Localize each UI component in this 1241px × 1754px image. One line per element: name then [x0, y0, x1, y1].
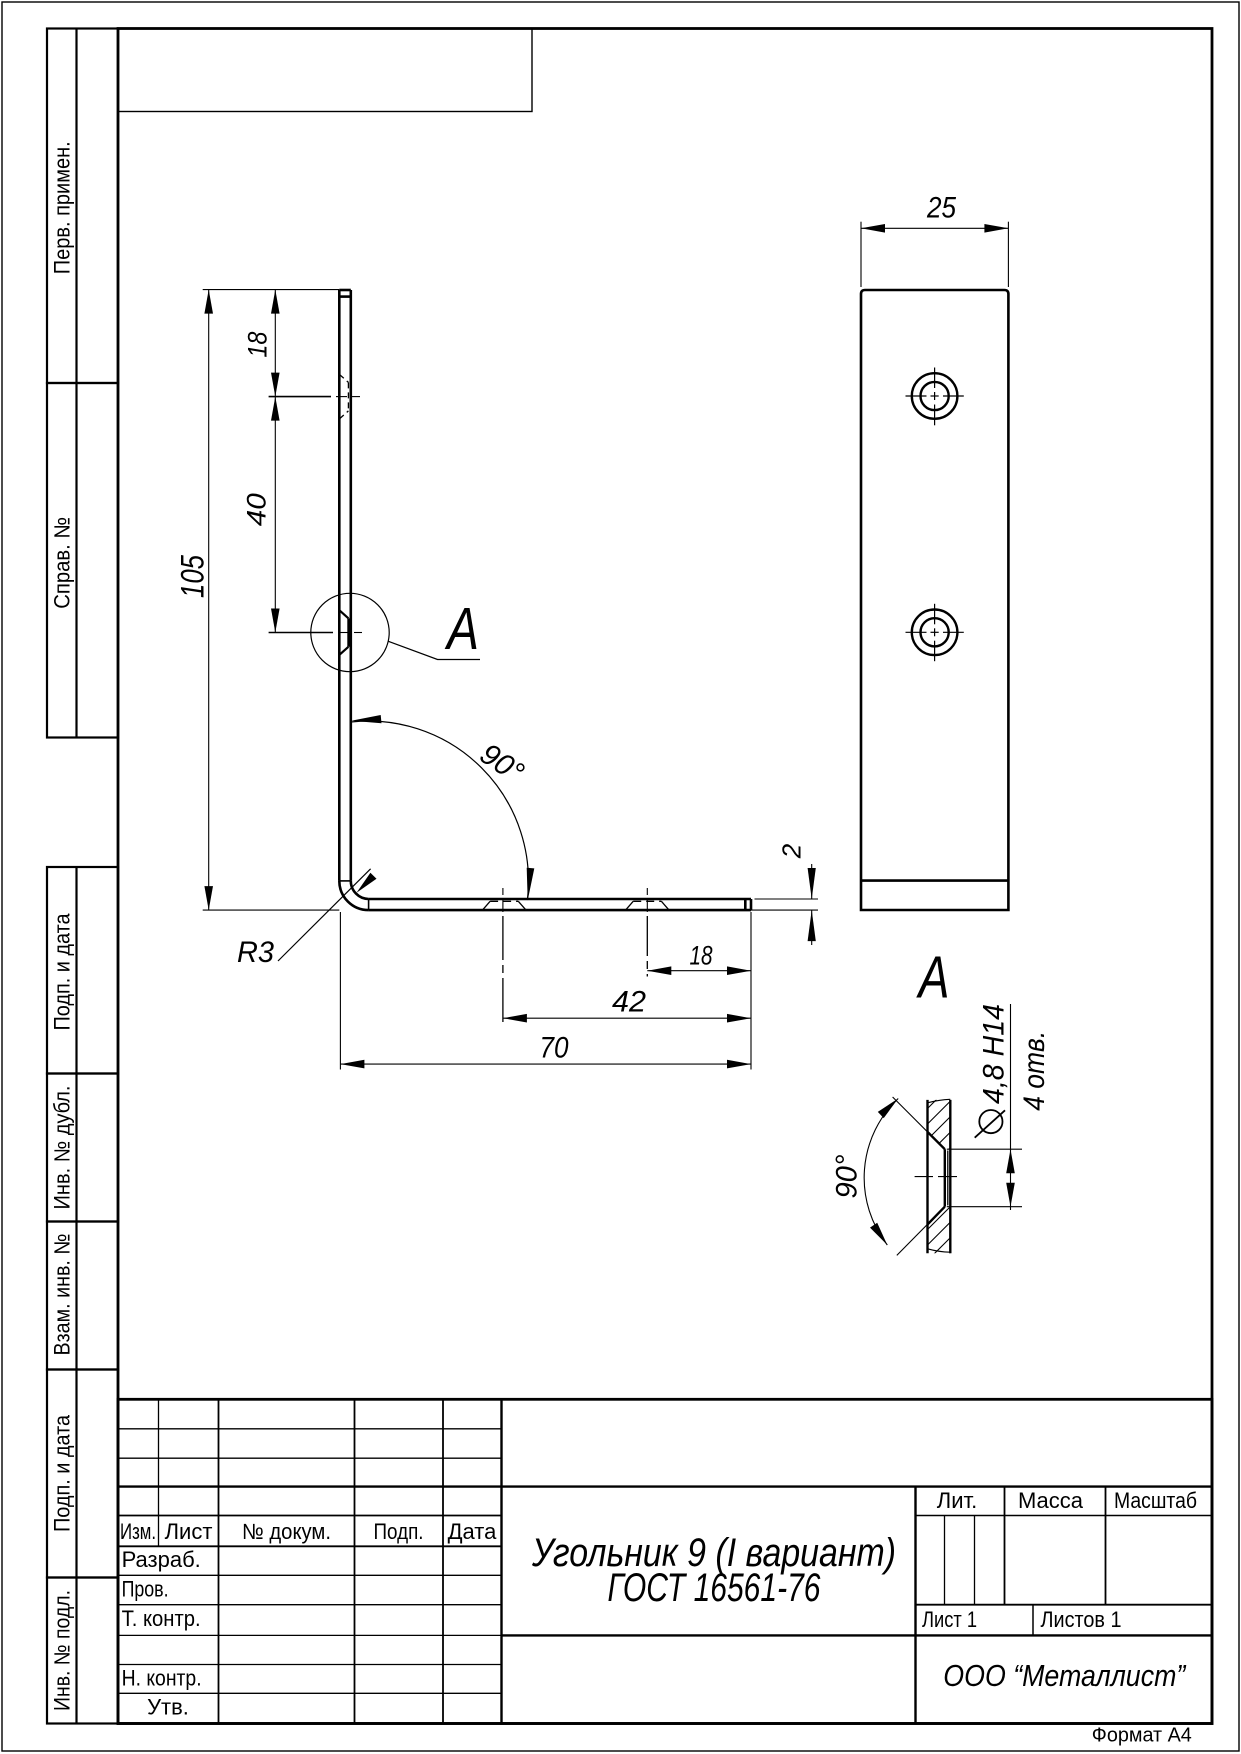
svg-text:Листов 1: Листов 1 [1041, 1607, 1122, 1632]
svg-text:4 отв.: 4 отв. [1018, 1031, 1051, 1111]
svg-text:Изм.: Изм. [120, 1519, 156, 1544]
svg-text:№ докум.: № докум. [242, 1519, 331, 1544]
svg-text:25: 25 [926, 192, 956, 225]
svg-text:R3: R3 [237, 936, 274, 969]
svg-text:Инв. № подл.: Инв. № подл. [50, 1590, 75, 1711]
svg-text:Справ. №: Справ. № [50, 517, 75, 609]
svg-text:A: A [445, 596, 479, 662]
svg-text:2: 2 [777, 843, 807, 859]
svg-text:Масштаб: Масштаб [1114, 1488, 1197, 1513]
svg-text:4,8 H14: 4,8 H14 [978, 1004, 1011, 1104]
svg-text:Т. контр.: Т. контр. [122, 1606, 201, 1631]
svg-text:Лист: Лист [165, 1519, 213, 1544]
svg-text:40: 40 [242, 493, 272, 526]
svg-text:Пров.: Пров. [122, 1577, 169, 1602]
svg-text:Подп. и дата: Подп. и дата [50, 913, 75, 1031]
svg-text:105: 105 [175, 555, 211, 598]
svg-text:Лит.: Лит. [937, 1488, 977, 1513]
svg-text:Формат А4: Формат А4 [1092, 1725, 1192, 1747]
svg-text:ООО “Металлист”: ООО “Металлист” [943, 1658, 1186, 1693]
svg-text:Масса: Масса [1018, 1488, 1084, 1513]
svg-text:90°: 90° [831, 1155, 864, 1199]
svg-text:Лист 1: Лист 1 [922, 1607, 977, 1632]
svg-text:70: 70 [540, 1032, 569, 1065]
svg-text:42: 42 [612, 986, 646, 1019]
svg-text:18: 18 [243, 332, 273, 358]
svg-text:Перв. примен.: Перв. примен. [50, 141, 75, 274]
svg-text:18: 18 [690, 941, 713, 971]
svg-text:Инв. № дубл.: Инв. № дубл. [50, 1086, 75, 1210]
svg-text:ГОСТ 16561-76: ГОСТ 16561-76 [608, 1566, 822, 1610]
svg-text:Дата: Дата [448, 1519, 497, 1544]
svg-text:Взам. инв. №: Взам. инв. № [50, 1234, 75, 1356]
svg-text:Подп.: Подп. [374, 1519, 424, 1544]
svg-text:Н. контр.: Н. контр. [122, 1666, 202, 1691]
svg-text:A: A [916, 945, 949, 1011]
svg-text:Утв.: Утв. [147, 1695, 189, 1720]
svg-text:Разраб.: Разраб. [122, 1547, 201, 1572]
svg-text:Подп. и дата: Подп. и дата [50, 1414, 75, 1532]
